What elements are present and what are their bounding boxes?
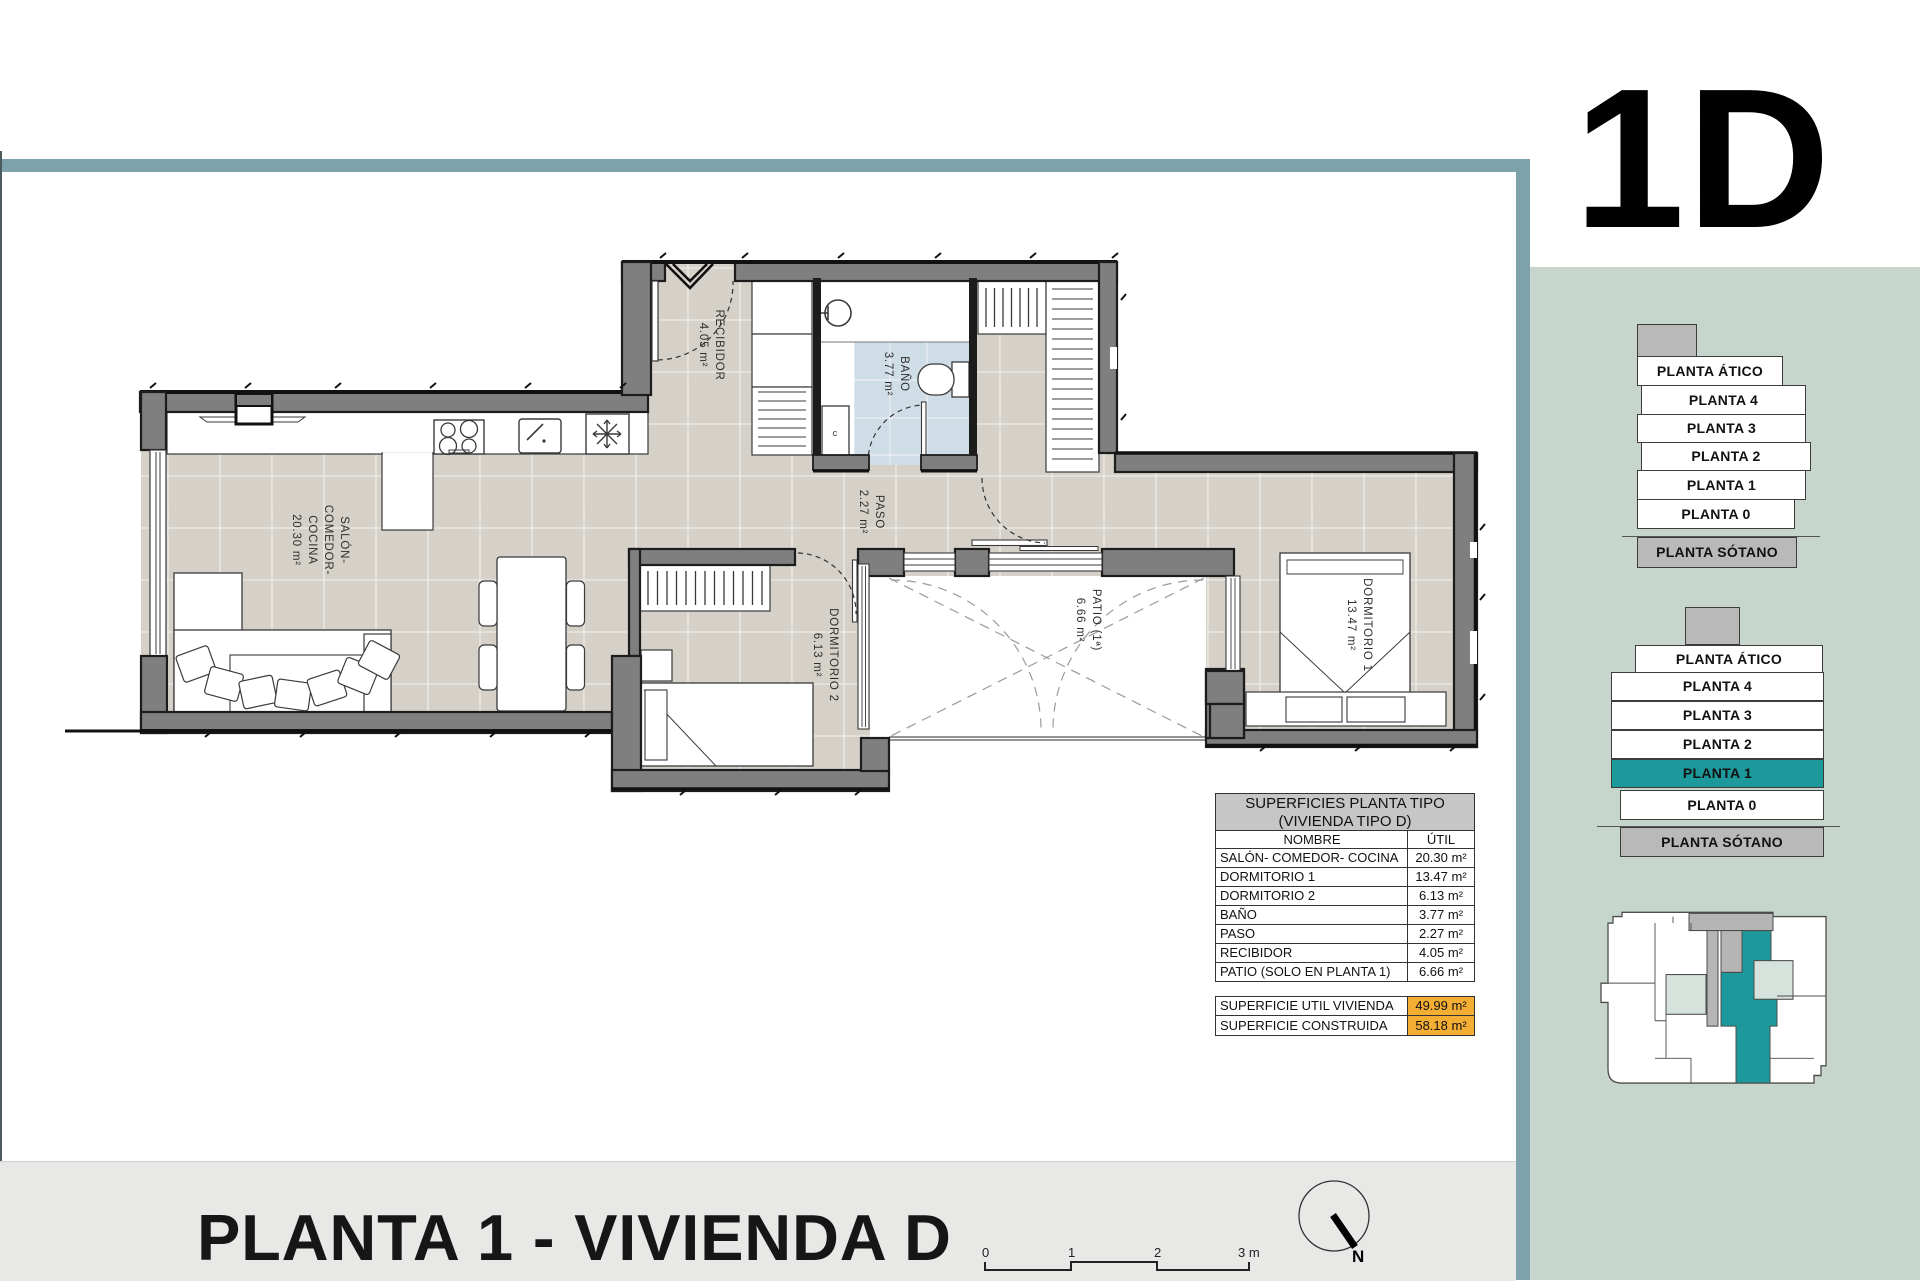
svg-text:3 m: 3 m [1238, 1245, 1260, 1260]
svg-text:1: 1 [1068, 1245, 1075, 1260]
svg-text:2: 2 [1154, 1245, 1161, 1260]
svg-text:0: 0 [982, 1245, 989, 1260]
svg-text:c: c [833, 428, 838, 438]
svg-text:N: N [1352, 1247, 1364, 1266]
